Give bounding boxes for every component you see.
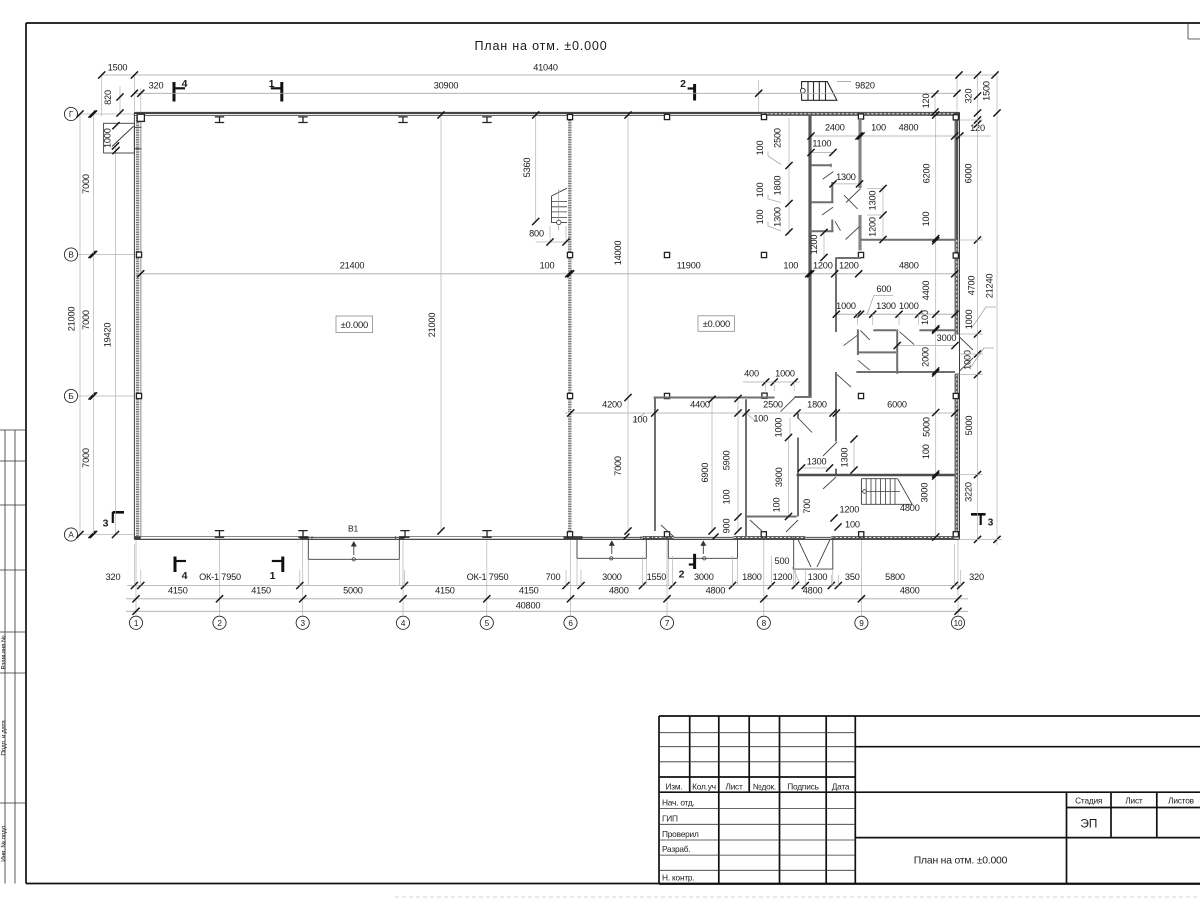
svg-text:700: 700 — [546, 572, 561, 582]
svg-text:100: 100 — [783, 260, 798, 270]
svg-text:Взам.инв.№: Взам.инв.№ — [1, 635, 8, 669]
svg-text:1300: 1300 — [836, 172, 856, 182]
svg-text:3900: 3900 — [774, 467, 784, 487]
svg-text:1000: 1000 — [773, 418, 783, 438]
svg-text:Стадия: Стадия — [1075, 795, 1102, 805]
svg-text:2: 2 — [217, 619, 222, 628]
svg-text:100: 100 — [921, 444, 931, 459]
svg-text:500: 500 — [775, 556, 790, 566]
svg-text:3000: 3000 — [937, 333, 957, 343]
svg-text:21000: 21000 — [427, 313, 437, 338]
svg-text:1200: 1200 — [839, 260, 859, 270]
svg-text:1: 1 — [270, 570, 276, 582]
svg-text:1300: 1300 — [807, 457, 827, 467]
svg-text:А: А — [68, 531, 74, 540]
svg-text:100: 100 — [755, 183, 765, 198]
svg-text:320: 320 — [964, 89, 974, 104]
svg-text:ОК-1 7950: ОК-1 7950 — [199, 572, 241, 582]
svg-text:Лист: Лист — [725, 782, 743, 792]
svg-text:Изм.: Изм. — [666, 782, 683, 792]
svg-text:3000: 3000 — [694, 572, 714, 582]
svg-text:1200: 1200 — [868, 217, 878, 237]
svg-text:4: 4 — [401, 619, 406, 628]
svg-text:1000: 1000 — [899, 301, 919, 311]
svg-text:1300: 1300 — [840, 448, 850, 468]
svg-text:Подпись: Подпись — [787, 782, 818, 792]
svg-text:2400: 2400 — [825, 123, 845, 133]
svg-text:ГИП: ГИП — [662, 813, 678, 823]
svg-text:3: 3 — [988, 518, 994, 529]
svg-text:План на отм. ±0.000: План на отм. ±0.000 — [914, 856, 1008, 867]
svg-text:3: 3 — [301, 619, 306, 628]
svg-text:±0.000: ±0.000 — [703, 318, 730, 329]
svg-text:100: 100 — [845, 520, 860, 530]
svg-text:5800: 5800 — [885, 572, 905, 582]
svg-text:320: 320 — [149, 81, 164, 91]
svg-text:7000: 7000 — [613, 456, 623, 476]
svg-text:4150: 4150 — [519, 585, 539, 595]
svg-text:1500: 1500 — [982, 81, 992, 101]
svg-text:1200: 1200 — [839, 504, 859, 514]
svg-text:Кол.уч: Кол.уч — [692, 782, 716, 792]
svg-text:320: 320 — [969, 572, 984, 582]
svg-text:6: 6 — [568, 619, 573, 628]
svg-text:820: 820 — [103, 90, 113, 105]
svg-text:6200: 6200 — [922, 164, 932, 184]
svg-text:4800: 4800 — [899, 260, 919, 270]
svg-text:30900: 30900 — [434, 81, 459, 91]
svg-text:1: 1 — [269, 78, 275, 90]
svg-text:2500: 2500 — [763, 400, 783, 410]
svg-text:4: 4 — [182, 78, 188, 90]
svg-text:2000: 2000 — [920, 347, 930, 367]
svg-text:4400: 4400 — [921, 281, 931, 301]
svg-text:Подп. и дата: Подп. и дата — [1, 720, 8, 756]
svg-text:Нач. отд.: Нач. отд. — [662, 798, 695, 808]
svg-text:2500: 2500 — [773, 128, 783, 148]
svg-text:100: 100 — [920, 310, 930, 325]
svg-text:В1: В1 — [348, 524, 359, 534]
svg-text:10: 10 — [954, 619, 963, 628]
svg-text:120: 120 — [921, 94, 931, 109]
svg-text:19420: 19420 — [103, 323, 113, 348]
svg-text:7000: 7000 — [81, 448, 91, 468]
svg-text:21240: 21240 — [984, 274, 994, 299]
svg-text:11900: 11900 — [677, 260, 701, 270]
svg-text:9: 9 — [859, 619, 864, 628]
svg-text:21000: 21000 — [67, 307, 77, 332]
svg-text:9820: 9820 — [855, 81, 875, 91]
svg-text:6000: 6000 — [887, 400, 907, 410]
svg-text:4800: 4800 — [706, 585, 726, 595]
svg-text:100: 100 — [921, 212, 931, 227]
svg-text:±0.000: ±0.000 — [341, 319, 368, 330]
svg-text:5000: 5000 — [964, 416, 974, 436]
svg-text:21400: 21400 — [340, 260, 365, 270]
svg-text:1300: 1300 — [808, 572, 828, 582]
svg-text:5: 5 — [485, 619, 490, 628]
svg-text:Проверил: Проверил — [662, 829, 699, 839]
svg-text:ОК-1 7950: ОК-1 7950 — [467, 572, 509, 582]
svg-text:4700: 4700 — [967, 276, 977, 296]
svg-text:7: 7 — [665, 619, 670, 628]
svg-text:План на отм. ±0.000: План на отм. ±0.000 — [474, 39, 607, 53]
svg-text:1000: 1000 — [775, 369, 795, 379]
svg-text:1500: 1500 — [108, 63, 128, 73]
svg-text:3000: 3000 — [919, 483, 929, 503]
svg-text:3: 3 — [103, 518, 109, 530]
svg-text:1200: 1200 — [813, 260, 833, 270]
svg-text:4800: 4800 — [900, 503, 920, 513]
svg-text:4400: 4400 — [690, 400, 710, 410]
svg-text:1300: 1300 — [773, 207, 783, 227]
svg-text:Н. контр.: Н. контр. — [662, 873, 694, 883]
svg-text:№док.: №док. — [753, 782, 776, 792]
svg-text:40800: 40800 — [516, 601, 541, 611]
svg-text:Б: Б — [68, 392, 73, 401]
svg-text:ЭП: ЭП — [1080, 817, 1097, 831]
svg-text:100: 100 — [755, 210, 765, 225]
svg-text:320: 320 — [106, 572, 121, 582]
svg-text:1: 1 — [134, 619, 139, 628]
svg-text:5360: 5360 — [522, 158, 532, 178]
svg-text:4800: 4800 — [899, 123, 919, 133]
svg-text:4150: 4150 — [435, 585, 455, 595]
svg-text:1200: 1200 — [773, 572, 793, 582]
svg-text:4800: 4800 — [609, 585, 629, 595]
svg-text:600: 600 — [876, 284, 891, 294]
svg-text:2: 2 — [680, 78, 686, 90]
svg-text:100: 100 — [871, 123, 886, 133]
svg-text:3000: 3000 — [602, 572, 622, 582]
svg-text:1000: 1000 — [836, 301, 856, 311]
svg-text:1200: 1200 — [809, 235, 819, 255]
svg-text:4800: 4800 — [900, 585, 920, 595]
svg-text:1300: 1300 — [868, 191, 878, 211]
svg-text:1000: 1000 — [102, 128, 112, 148]
svg-text:2: 2 — [679, 569, 685, 581]
svg-text:Инв. № подл.: Инв. № подл. — [1, 824, 8, 862]
svg-text:Разраб.: Разраб. — [662, 844, 690, 854]
svg-text:Листов: Листов — [1168, 795, 1195, 805]
svg-text:1100: 1100 — [812, 138, 831, 148]
svg-text:4: 4 — [182, 570, 188, 582]
svg-text:4800: 4800 — [803, 585, 823, 595]
svg-text:1300: 1300 — [876, 301, 896, 311]
svg-text:100: 100 — [771, 498, 781, 513]
svg-text:14000: 14000 — [613, 241, 623, 266]
svg-text:5000: 5000 — [343, 585, 363, 595]
svg-text:800: 800 — [529, 229, 544, 239]
svg-text:900: 900 — [721, 519, 731, 534]
svg-text:Дата: Дата — [832, 782, 850, 792]
svg-text:8: 8 — [762, 619, 767, 628]
svg-text:Лист: Лист — [1125, 795, 1143, 805]
svg-text:4150: 4150 — [251, 585, 271, 595]
svg-text:7000: 7000 — [81, 310, 91, 330]
svg-text:1550: 1550 — [647, 572, 667, 582]
svg-text:6900: 6900 — [700, 463, 710, 483]
svg-text:5000: 5000 — [922, 417, 932, 437]
svg-text:7000: 7000 — [81, 174, 91, 194]
svg-text:700: 700 — [802, 499, 812, 514]
svg-text:1800: 1800 — [742, 572, 762, 582]
svg-text:1800: 1800 — [807, 400, 827, 410]
svg-text:400: 400 — [744, 369, 759, 379]
svg-text:4150: 4150 — [168, 585, 188, 595]
svg-text:6000: 6000 — [963, 164, 973, 184]
svg-text:4200: 4200 — [602, 400, 622, 410]
svg-text:100: 100 — [721, 490, 731, 505]
svg-text:100: 100 — [753, 414, 768, 424]
svg-text:5900: 5900 — [722, 450, 732, 470]
svg-text:100: 100 — [633, 415, 648, 425]
svg-text:350: 350 — [845, 572, 860, 582]
svg-text:В: В — [68, 251, 74, 260]
svg-text:41040: 41040 — [533, 63, 558, 73]
svg-text:1800: 1800 — [773, 176, 783, 196]
svg-text:3220: 3220 — [964, 482, 974, 502]
svg-text:100: 100 — [755, 141, 765, 156]
svg-text:100: 100 — [540, 260, 555, 270]
